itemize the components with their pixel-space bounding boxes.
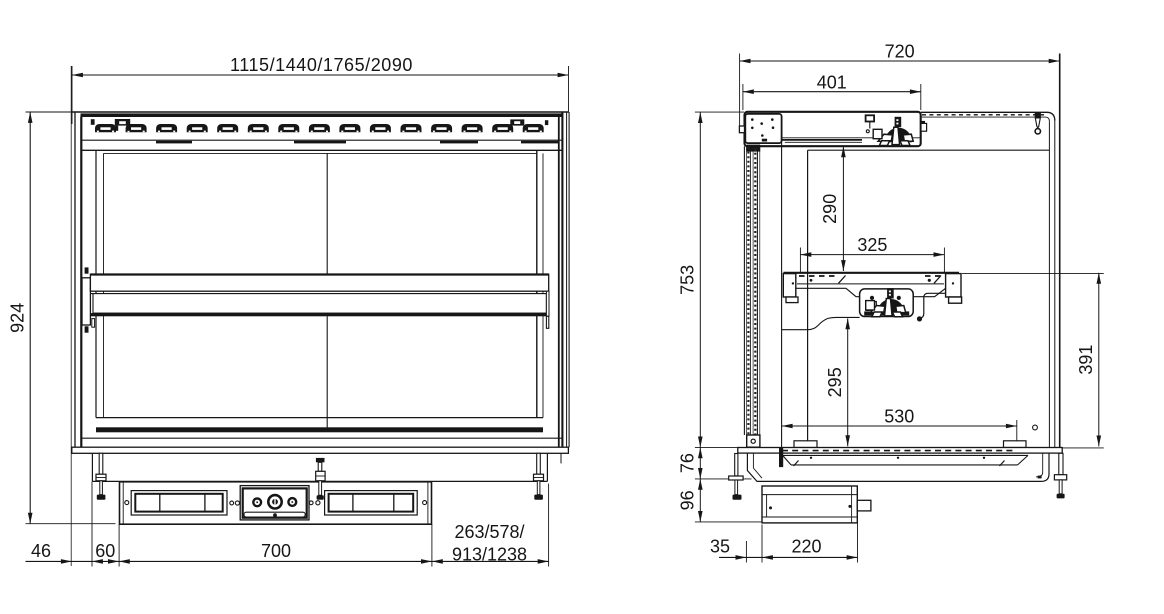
svg-text:401: 401 — [817, 72, 847, 92]
svg-text:1115/1440/1765/2090: 1115/1440/1765/2090 — [230, 55, 413, 75]
svg-text:530: 530 — [884, 407, 914, 427]
svg-text:46: 46 — [31, 541, 51, 561]
svg-text:720: 720 — [885, 42, 915, 62]
svg-text:76: 76 — [678, 453, 698, 473]
svg-text:753: 753 — [678, 265, 698, 295]
svg-text:700: 700 — [261, 541, 291, 561]
svg-text:60: 60 — [95, 541, 115, 561]
svg-text:325: 325 — [857, 235, 887, 255]
svg-text:96: 96 — [678, 490, 698, 510]
svg-text:924: 924 — [7, 303, 27, 333]
svg-text:391: 391 — [1076, 345, 1096, 375]
svg-text:35: 35 — [710, 537, 730, 557]
svg-text:295: 295 — [825, 367, 845, 397]
svg-text:263/578/: 263/578/ — [454, 522, 524, 542]
svg-text:220: 220 — [791, 537, 821, 557]
svg-text:913/1238: 913/1238 — [452, 544, 527, 564]
svg-text:290: 290 — [820, 194, 840, 224]
